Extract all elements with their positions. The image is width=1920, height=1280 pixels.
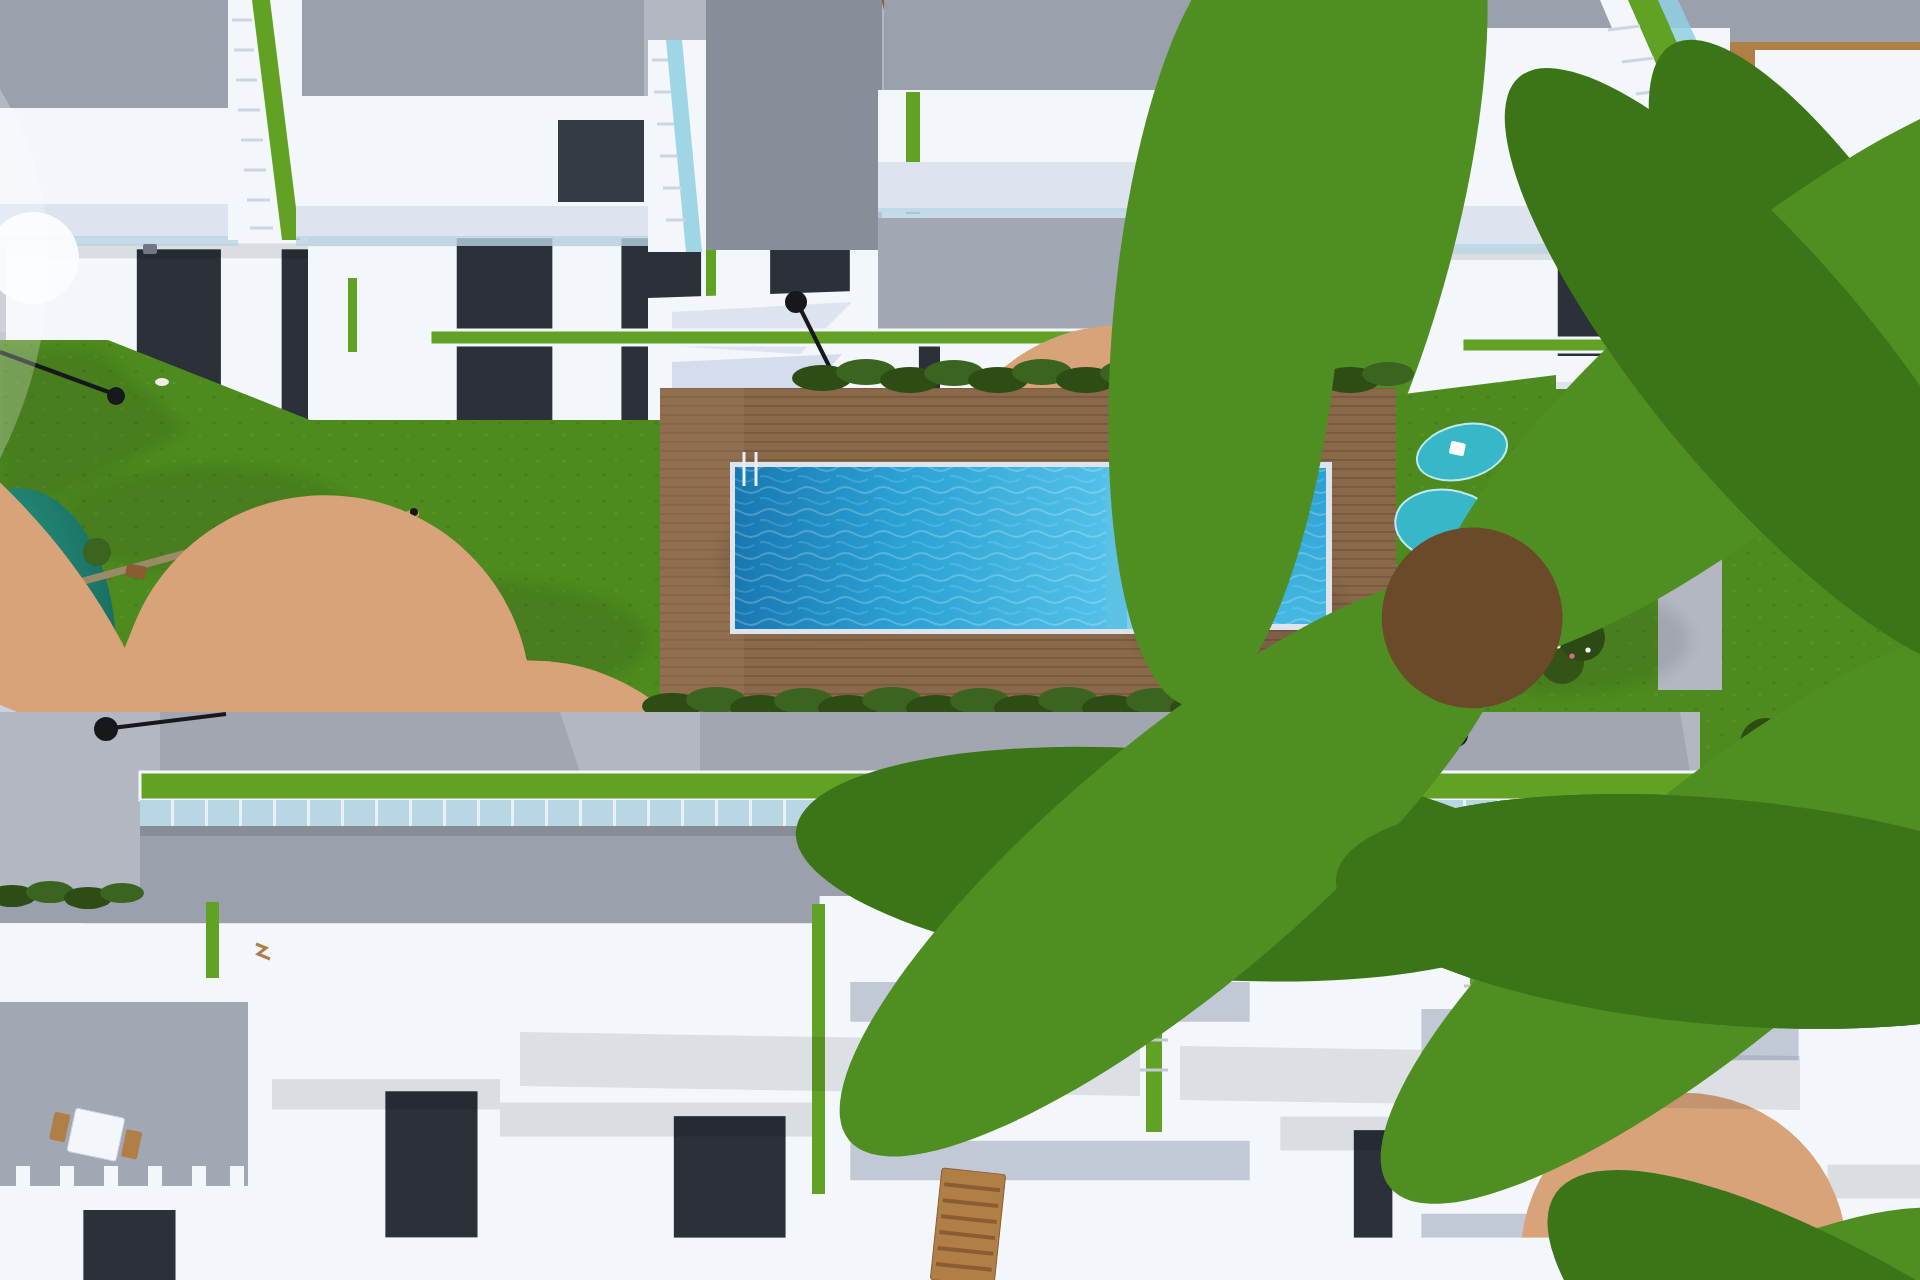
stair-connection-2 [648, 40, 706, 252]
bush [83, 538, 111, 566]
glass-rail [296, 236, 648, 246]
dog [155, 378, 169, 386]
facade-edge [296, 206, 648, 238]
corner-terrace [0, 990, 260, 1198]
planter-strip [348, 278, 357, 352]
roof [302, 0, 644, 96]
stroller [143, 244, 157, 254]
aerial-render [0, 0, 1920, 1280]
patio-opening [558, 120, 644, 202]
planter-strip [706, 250, 716, 300]
scene-canvas [0, 0, 1920, 1280]
stair-connection-1 [228, 0, 302, 240]
walkway-continues [0, 826, 140, 888]
gray-wall [706, 0, 882, 250]
wooden-pallet [930, 1168, 1005, 1280]
roof [0, 0, 228, 108]
planter [1462, 338, 1622, 352]
pool-water-texture [735, 467, 1106, 629]
building-shadow [160, 712, 580, 772]
